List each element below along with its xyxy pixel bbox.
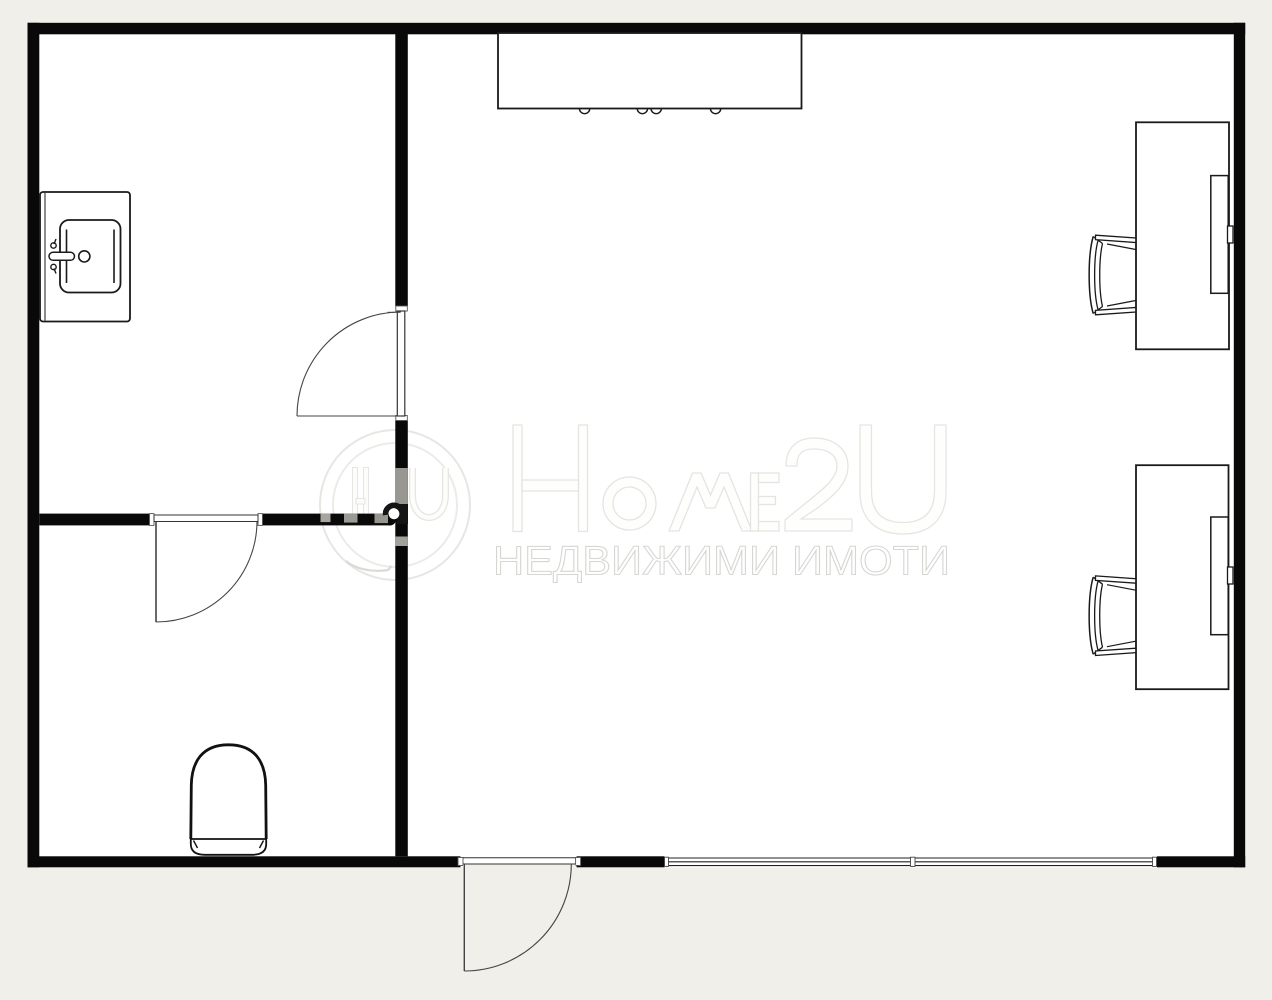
- svg-text:НЕДВИЖИМИ ИМОТИ: НЕДВИЖИМИ ИМОТИ: [493, 538, 950, 584]
